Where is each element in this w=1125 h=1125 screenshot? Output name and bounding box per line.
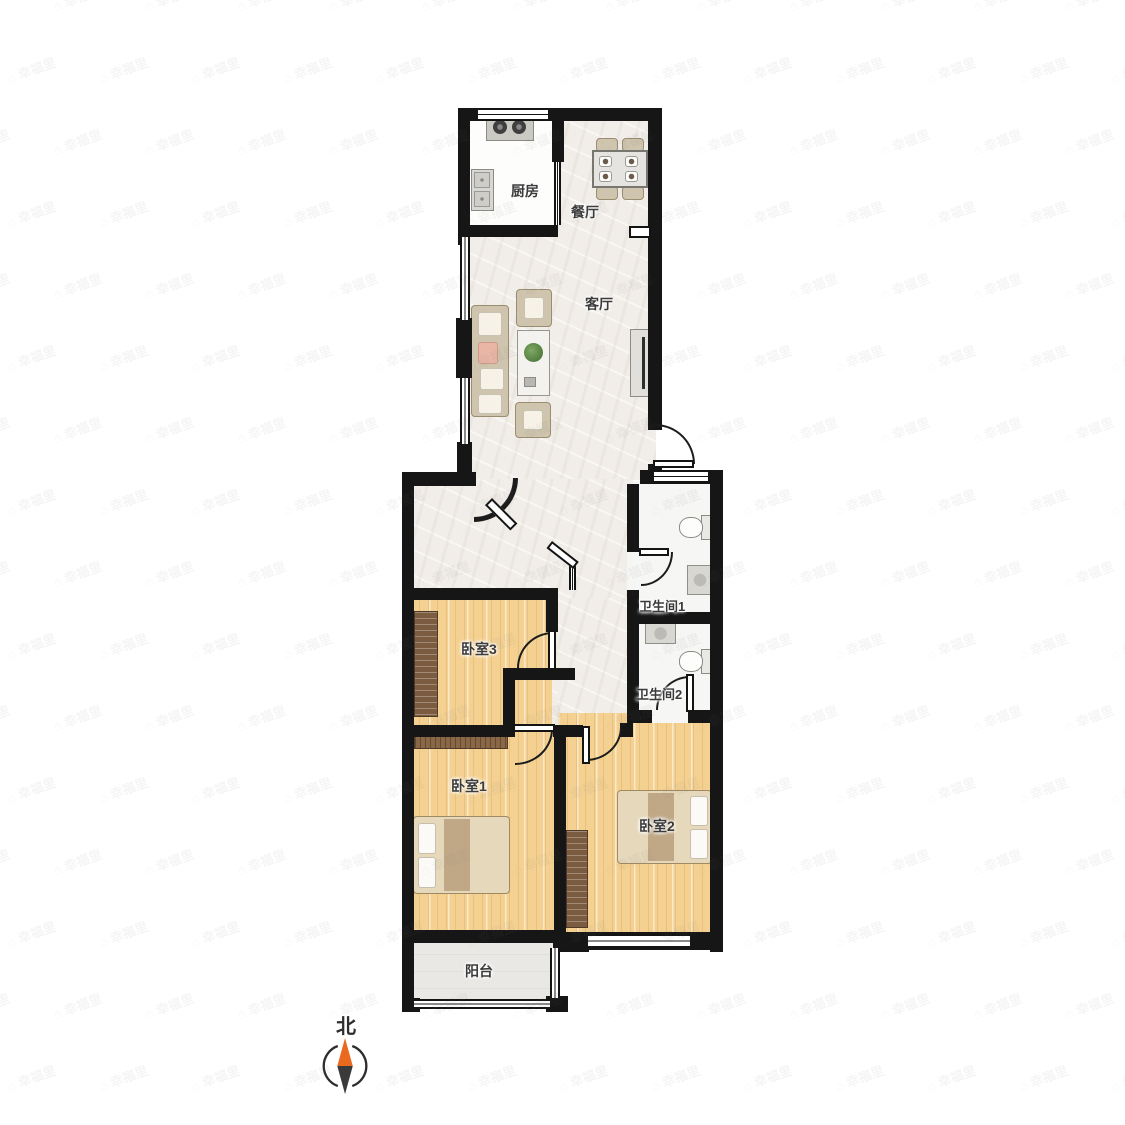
watermark-text: ⌂ 幸福里 — [602, 988, 656, 1023]
watermark-text: ⌂ 幸福里 — [740, 484, 794, 519]
watermark-text: ⌂ 幸福里 — [142, 124, 196, 159]
watermark-text: ⌂ 幸福里 — [740, 340, 794, 375]
watermark-text: ⌂ 幸福里 — [970, 844, 1024, 879]
sofa-cushion-pink — [478, 342, 498, 364]
armchair-cushion — [523, 410, 543, 430]
window — [478, 108, 548, 121]
watermark-text: ⌂ 幸福里 — [326, 124, 380, 159]
watermark-text: ⌂ 幸福里 — [142, 268, 196, 303]
room-label-bath2: 卫生间2 — [636, 684, 682, 703]
watermark-text: ⌂ 幸福里 — [786, 988, 840, 1023]
watermark-text: ⌂ 幸福里 — [280, 628, 334, 663]
watermark-text: ⌂ 幸福里 — [372, 1060, 426, 1095]
watermark-text: ⌂ 幸福里 — [4, 628, 58, 663]
watermark-text: ⌂ 幸福里 — [50, 988, 104, 1023]
watermark-text: ⌂ 幸福里 — [1016, 484, 1070, 519]
bed3-door-leaf — [548, 630, 556, 670]
watermark-text: ⌂ 幸福里 — [0, 844, 12, 879]
watermark-text: ⌂ 幸福里 — [96, 1060, 150, 1095]
watermark-text: ⌂ 幸福里 — [234, 124, 288, 159]
wall — [402, 725, 515, 737]
balcony-window — [414, 999, 550, 1009]
watermark-text: ⌂ 幸福里 — [96, 628, 150, 663]
watermark-text: ⌂ 幸福里 — [1062, 412, 1116, 447]
watermark-text: ⌂ 幸福里 — [694, 268, 748, 303]
watermark-text: ⌂ 幸福里 — [142, 556, 196, 591]
watermark-text: ⌂ 幸福里 — [786, 700, 840, 735]
stove-burner-icon — [493, 120, 507, 134]
armchair-cushion — [524, 297, 544, 319]
kitchen-door-frame — [554, 162, 561, 225]
coffee-table — [517, 330, 550, 396]
watermark-text: ⌂ 幸福里 — [924, 916, 978, 951]
watermark-text: ⌂ 幸福里 — [740, 52, 794, 87]
watermark-text: ⌂ 幸福里 — [1016, 1060, 1070, 1095]
watermark-text: ⌂ 幸福里 — [1108, 340, 1125, 375]
watermark-text: ⌂ 幸福里 — [1108, 628, 1125, 663]
watermark-text: ⌂ 幸福里 — [326, 700, 380, 735]
watermark-text: ⌂ 幸福里 — [188, 484, 242, 519]
watermark-text: ⌂ 幸福里 — [510, 0, 564, 15]
wall — [546, 600, 558, 632]
watermark-text: ⌂ 幸福里 — [142, 0, 196, 15]
watermark-text: ⌂ 幸福里 — [4, 772, 58, 807]
window — [460, 237, 470, 320]
watermark-text: ⌂ 幸福里 — [188, 1060, 242, 1095]
watermark-text: ⌂ 幸福里 — [878, 844, 932, 879]
watermark-text: ⌂ 幸福里 — [188, 52, 242, 87]
watermark-text: ⌂ 幸福里 — [188, 628, 242, 663]
watermark-text: ⌂ 幸福里 — [878, 556, 932, 591]
watermark-text: ⌂ 幸福里 — [878, 700, 932, 735]
watermark-text: ⌂ 幸福里 — [970, 412, 1024, 447]
watermark-text: ⌂ 幸福里 — [326, 0, 380, 15]
tv-stand — [630, 329, 649, 397]
watermark-text: ⌂ 幸福里 — [4, 52, 58, 87]
watermark-text: ⌂ 幸福里 — [1108, 916, 1125, 951]
watermark-text: ⌂ 幸福里 — [786, 0, 840, 15]
watermark-text: ⌂ 幸福里 — [142, 844, 196, 879]
watermark-text: ⌂ 幸福里 — [188, 340, 242, 375]
bed — [413, 816, 510, 894]
dining-chair — [596, 186, 618, 200]
watermark-text: ⌂ 幸福里 — [832, 196, 886, 231]
room-label-balcony: 阳台 — [465, 961, 493, 981]
watermark-text: ⌂ 幸福里 — [878, 268, 932, 303]
watermark-text: ⌂ 幸福里 — [0, 124, 12, 159]
place-setting — [625, 171, 638, 182]
watermark-text: ⌂ 幸福里 — [0, 0, 12, 15]
table-item — [524, 377, 536, 387]
watermark-text: ⌂ 幸福里 — [280, 916, 334, 951]
tv-icon — [642, 337, 645, 389]
watermark-text: ⌂ 幸福里 — [142, 700, 196, 735]
watermark-text: ⌂ 幸福里 — [1108, 772, 1125, 807]
watermark-text: ⌂ 幸福里 — [694, 412, 748, 447]
compass-north-label: 北 — [336, 1010, 356, 1039]
watermark-text: ⌂ 幸福里 — [372, 52, 426, 87]
watermark-text: ⌂ 幸福里 — [50, 124, 104, 159]
watermark-text: ⌂ 幸福里 — [878, 412, 932, 447]
blanket — [444, 819, 470, 891]
watermark-text: ⌂ 幸福里 — [924, 196, 978, 231]
wall — [627, 484, 639, 552]
watermark-text: ⌂ 幸福里 — [878, 988, 932, 1023]
watermark-text: ⌂ 幸福里 — [970, 556, 1024, 591]
watermark-text: ⌂ 幸福里 — [786, 556, 840, 591]
watermark-text: ⌂ 幸福里 — [280, 340, 334, 375]
watermark-text: ⌂ 幸福里 — [1062, 556, 1116, 591]
watermark-text: ⌂ 幸福里 — [832, 340, 886, 375]
watermark-text: ⌂ 幸福里 — [1062, 700, 1116, 735]
armchair — [515, 402, 551, 438]
watermark-text: ⌂ 幸福里 — [234, 844, 288, 879]
floor-plan: 厨房 餐厅 客厅 卫生间1 卫生间2 卧室3 卧室1 卧室2 阳台 北 ⌂ 幸福… — [0, 0, 1125, 1125]
watermark-text: ⌂ 幸福里 — [832, 628, 886, 663]
room-label-living: 客厅 — [585, 294, 613, 314]
watermark-text: ⌂ 幸福里 — [740, 628, 794, 663]
wall — [552, 108, 564, 162]
wall — [620, 723, 633, 737]
kitchen-sink-icon — [471, 169, 494, 211]
watermark-text: ⌂ 幸福里 — [832, 484, 886, 519]
watermark-text: ⌂ 幸福里 — [786, 268, 840, 303]
watermark-text: ⌂ 幸福里 — [1016, 340, 1070, 375]
armchair — [516, 289, 552, 327]
watermark-text: ⌂ 幸福里 — [1016, 772, 1070, 807]
pillow — [418, 857, 436, 888]
room-label-bath1: 卫生间1 — [639, 596, 685, 615]
watermark-text: ⌂ 幸福里 — [188, 772, 242, 807]
watermark-text: ⌂ 幸福里 — [924, 340, 978, 375]
room-label-dining: 餐厅 — [571, 202, 599, 222]
watermark-text: ⌂ 幸福里 — [96, 916, 150, 951]
watermark-text: ⌂ 幸福里 — [0, 556, 12, 591]
watermark-text: ⌂ 幸福里 — [1016, 52, 1070, 87]
watermark-text: ⌂ 幸福里 — [50, 412, 104, 447]
place-setting — [599, 156, 612, 167]
watermark-text: ⌂ 幸福里 — [326, 268, 380, 303]
watermark-text: ⌂ 幸福里 — [1108, 52, 1125, 87]
watermark-text: ⌂ 幸福里 — [648, 52, 702, 87]
watermark-text: ⌂ 幸福里 — [740, 916, 794, 951]
wardrobe — [566, 830, 588, 928]
watermark-text: ⌂ 幸福里 — [694, 0, 748, 15]
watermark-text: ⌂ 幸福里 — [234, 556, 288, 591]
pillow — [690, 796, 708, 826]
pillow — [690, 829, 708, 859]
wall — [503, 680, 515, 725]
watermark-text: ⌂ 幸福里 — [556, 52, 610, 87]
entry-door-arc — [655, 424, 695, 464]
watermark-text: ⌂ 幸福里 — [832, 772, 886, 807]
wall — [456, 318, 472, 378]
sink-basin — [474, 172, 490, 188]
watermark-text: ⌂ 幸福里 — [0, 268, 12, 303]
bed1-door-leaf — [513, 724, 555, 732]
watermark-text: ⌂ 幸福里 — [878, 124, 932, 159]
watermark-text: ⌂ 幸福里 — [832, 916, 886, 951]
watermark-text: ⌂ 幸福里 — [970, 988, 1024, 1023]
watermark-text: ⌂ 幸福里 — [970, 124, 1024, 159]
watermark-text: ⌂ 幸福里 — [1016, 628, 1070, 663]
watermark-text: ⌂ 幸福里 — [188, 196, 242, 231]
watermark-text: ⌂ 幸福里 — [234, 268, 288, 303]
corridor-floor — [552, 598, 633, 725]
watermark-text: ⌂ 幸福里 — [464, 1060, 518, 1095]
watermark-text: ⌂ 幸福里 — [234, 700, 288, 735]
watermark-text: ⌂ 幸福里 — [924, 628, 978, 663]
watermark-text: ⌂ 幸福里 — [1062, 988, 1116, 1023]
room-label-kitchen: 厨房 — [511, 181, 539, 201]
watermark-text: ⌂ 幸福里 — [924, 772, 978, 807]
watermark-text: ⌂ 幸福里 — [740, 196, 794, 231]
watermark-text: ⌂ 幸福里 — [1062, 844, 1116, 879]
watermark-text: ⌂ 幸福里 — [50, 700, 104, 735]
wall — [402, 472, 414, 944]
toilet-icon — [679, 517, 703, 538]
wall — [402, 930, 566, 943]
watermark-text: ⌂ 幸福里 — [0, 412, 12, 447]
watermark-text: ⌂ 幸福里 — [96, 340, 150, 375]
watermark-text: ⌂ 幸福里 — [326, 412, 380, 447]
wardrobe — [414, 611, 438, 717]
entry-door-leaf — [653, 460, 694, 468]
watermark-text: ⌂ 幸福里 — [1062, 268, 1116, 303]
watermark-text: ⌂ 幸福里 — [464, 52, 518, 87]
watermark-text: ⌂ 幸福里 — [234, 412, 288, 447]
watermark-text: ⌂ 幸福里 — [372, 196, 426, 231]
watermark-text: ⌂ 幸福里 — [4, 1060, 58, 1095]
wall-vent — [629, 226, 651, 238]
wall — [554, 737, 566, 932]
watermark-text: ⌂ 幸福里 — [4, 916, 58, 951]
room-label-bed3: 卧室3 — [461, 639, 497, 659]
dining-chair — [622, 186, 644, 200]
watermark-text: ⌂ 幸福里 — [924, 1060, 978, 1095]
bath2-door-leaf — [686, 674, 694, 712]
wall — [553, 725, 583, 737]
watermark-text: ⌂ 幸福里 — [924, 52, 978, 87]
watermark-text: ⌂ 幸福里 — [1062, 0, 1116, 15]
sofa-cushion — [480, 368, 504, 390]
toilet-icon — [679, 651, 703, 672]
stove-burner-icon — [512, 120, 526, 134]
watermark-text: ⌂ 幸福里 — [96, 772, 150, 807]
watermark-text: ⌂ 幸福里 — [786, 412, 840, 447]
watermark-text: ⌂ 幸福里 — [188, 916, 242, 951]
watermark-text: ⌂ 幸福里 — [1016, 916, 1070, 951]
watermark-text: ⌂ 幸福里 — [326, 556, 380, 591]
bathroom-sink-icon — [645, 623, 676, 644]
room-label-bed2: 卧室2 — [639, 816, 675, 836]
watermark-text: ⌂ 幸福里 — [142, 988, 196, 1023]
sofa — [471, 305, 509, 417]
watermark-text: ⌂ 幸福里 — [786, 124, 840, 159]
watermark-text: ⌂ 幸福里 — [50, 268, 104, 303]
watermark-text: ⌂ 幸福里 — [418, 0, 472, 15]
watermark-text: ⌂ 幸福里 — [0, 988, 12, 1023]
watermark-text: ⌂ 幸福里 — [96, 52, 150, 87]
watermark-text: ⌂ 幸福里 — [326, 844, 380, 879]
wall — [458, 225, 558, 237]
watermark-text: ⌂ 幸福里 — [280, 52, 334, 87]
watermark-text: ⌂ 幸福里 — [280, 772, 334, 807]
watermark-text: ⌂ 幸福里 — [4, 340, 58, 375]
watermark-text: ⌂ 幸福里 — [832, 52, 886, 87]
watermark-text: ⌂ 幸福里 — [924, 484, 978, 519]
bath1-door-leaf — [639, 548, 669, 556]
watermark-text: ⌂ 幸福里 — [50, 0, 104, 15]
dining-table — [592, 150, 648, 188]
watermark-text: ⌂ 幸福里 — [970, 0, 1024, 15]
watermark-text: ⌂ 幸福里 — [602, 0, 656, 15]
sofa-cushion — [478, 312, 502, 336]
room-label-bed1: 卧室1 — [451, 776, 487, 796]
watermark-text: ⌂ 幸福里 — [1108, 484, 1125, 519]
watermark-text: ⌂ 幸福里 — [556, 1060, 610, 1095]
watermark-text: ⌂ 幸福里 — [0, 700, 12, 735]
wall — [503, 668, 575, 680]
watermark-text: ⌂ 幸福里 — [96, 484, 150, 519]
window — [654, 470, 708, 483]
watermark-text: ⌂ 幸福里 — [740, 772, 794, 807]
sink-basin — [474, 191, 490, 207]
window — [460, 378, 470, 444]
watermark-text: ⌂ 幸福里 — [1108, 196, 1125, 231]
watermark-text: ⌂ 幸福里 — [878, 0, 932, 15]
watermark-text: ⌂ 幸福里 — [280, 484, 334, 519]
watermark-text: ⌂ 幸福里 — [234, 0, 288, 15]
pillow — [418, 823, 436, 854]
watermark-text: ⌂ 幸福里 — [1016, 196, 1070, 231]
watermark-text: ⌂ 幸福里 — [1108, 1060, 1125, 1095]
watermark-text: ⌂ 幸福里 — [648, 1060, 702, 1095]
compass-icon — [317, 1036, 375, 1098]
watermark-text: ⌂ 幸福里 — [142, 412, 196, 447]
window — [588, 934, 690, 948]
watermark-text: ⌂ 幸福里 — [4, 484, 58, 519]
place-setting — [599, 171, 612, 182]
watermark-text: ⌂ 幸福里 — [832, 1060, 886, 1095]
watermark-text: ⌂ 幸福里 — [1062, 124, 1116, 159]
watermark-text: ⌂ 幸福里 — [4, 196, 58, 231]
place-setting — [625, 156, 638, 167]
balcony-window — [550, 948, 560, 998]
watermark-text: ⌂ 幸福里 — [50, 556, 104, 591]
watermark-text: ⌂ 幸福里 — [694, 124, 748, 159]
watermark-text: ⌂ 幸福里 — [96, 196, 150, 231]
hallway-floor — [410, 479, 633, 600]
watermark-text: ⌂ 幸福里 — [50, 844, 104, 879]
watermark-text: ⌂ 幸福里 — [786, 844, 840, 879]
watermark-text: ⌂ 幸福里 — [694, 988, 748, 1023]
doorway — [627, 552, 639, 590]
watermark-text: ⌂ 幸福里 — [372, 340, 426, 375]
watermark-text: ⌂ 幸福里 — [280, 196, 334, 231]
watermark-text: ⌂ 幸福里 — [740, 1060, 794, 1095]
doorway — [652, 710, 688, 723]
watermark-text: ⌂ 幸福里 — [234, 988, 288, 1023]
watermark-text: ⌂ 幸福里 — [970, 268, 1024, 303]
wall — [402, 588, 558, 600]
bed2-door-leaf — [582, 726, 590, 764]
wall — [648, 108, 662, 430]
plant-icon — [524, 343, 543, 362]
sofa-cushion — [478, 394, 502, 414]
watermark-text: ⌂ 幸福里 — [970, 700, 1024, 735]
